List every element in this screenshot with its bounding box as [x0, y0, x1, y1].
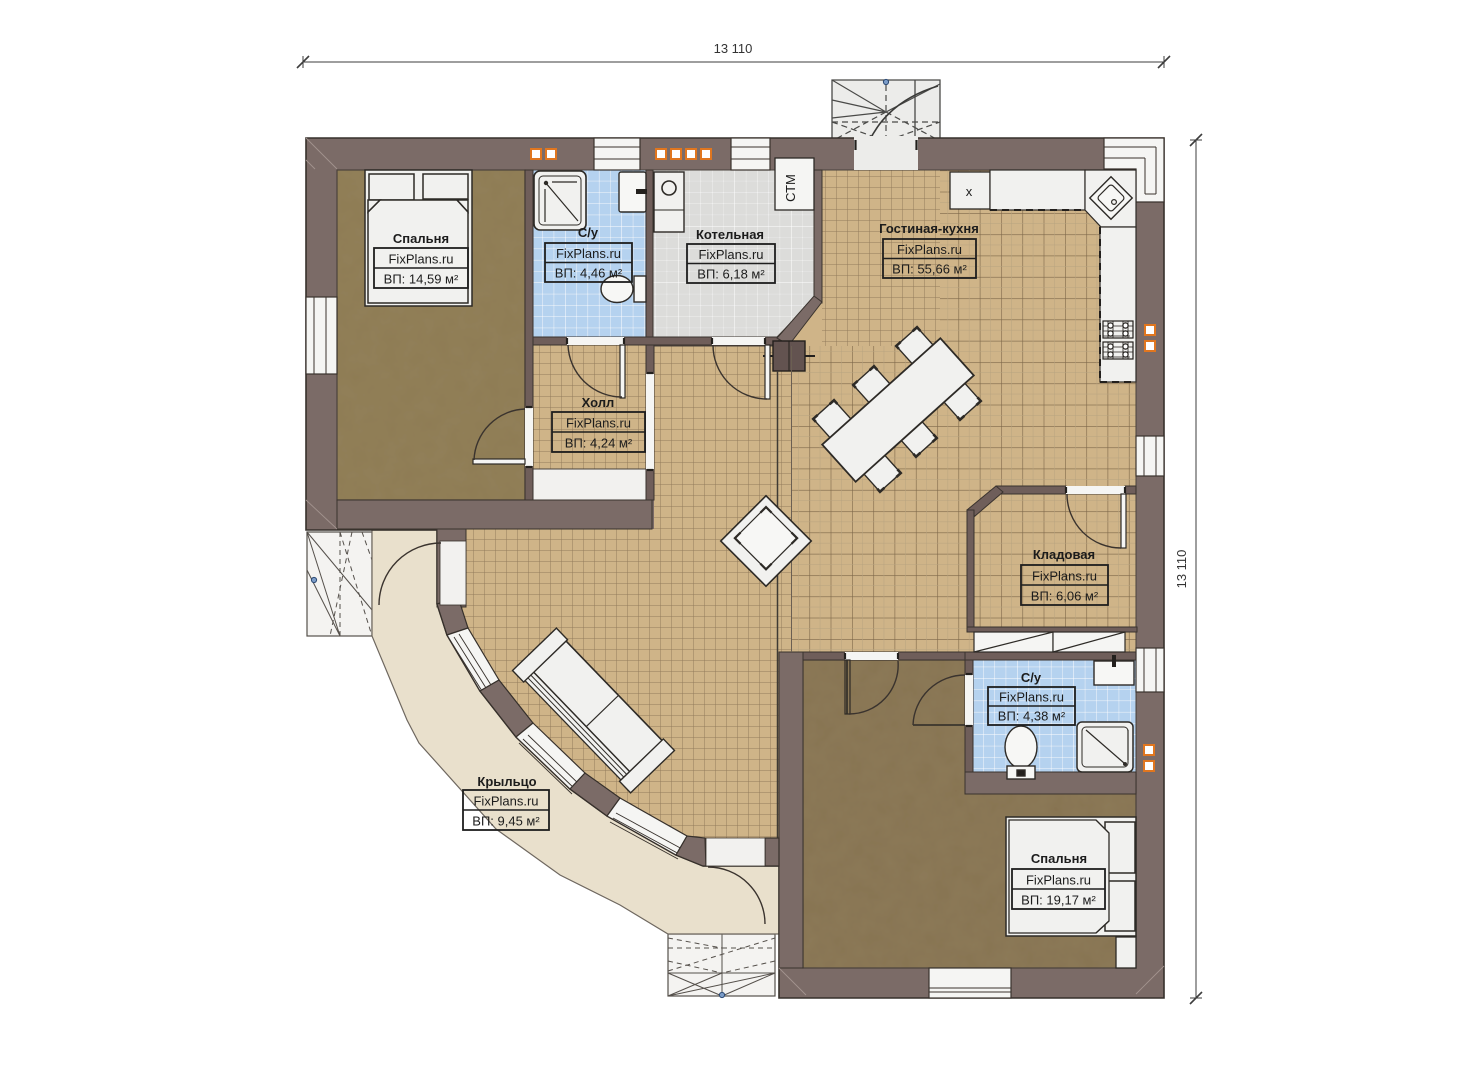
svg-text:FixPlans.ru: FixPlans.ru: [566, 416, 631, 431]
svg-text:ВП: 55,66 м²: ВП: 55,66 м²: [892, 262, 967, 277]
svg-text:FixPlans.ru: FixPlans.ru: [473, 794, 538, 809]
svg-text:FixPlans.ru: FixPlans.ru: [556, 246, 621, 261]
svg-text:ВП: 4,46 м²: ВП: 4,46 м²: [555, 266, 623, 281]
svg-text:Гостиная-кухня: Гостиная-кухня: [879, 221, 979, 236]
svg-text:Спальня: Спальня: [1031, 851, 1087, 866]
svg-text:Крыльцо: Крыльцо: [477, 774, 536, 789]
svg-text:FixPlans.ru: FixPlans.ru: [388, 252, 453, 267]
svg-text:ВП: 14,59 м²: ВП: 14,59 м²: [384, 272, 459, 287]
svg-text:FixPlans.ru: FixPlans.ru: [897, 242, 962, 257]
svg-text:Спальня: Спальня: [393, 231, 449, 246]
svg-text:FixPlans.ru: FixPlans.ru: [1026, 873, 1091, 888]
svg-text:С/у: С/у: [1021, 670, 1042, 685]
svg-text:ВП: 9,45 м²: ВП: 9,45 м²: [472, 814, 540, 829]
svg-text:FixPlans.ru: FixPlans.ru: [698, 247, 763, 262]
svg-text:ВП: 4,38 м²: ВП: 4,38 м²: [998, 709, 1066, 724]
svg-text:ВП: 4,24 м²: ВП: 4,24 м²: [565, 436, 633, 451]
svg-text:Кладовая: Кладовая: [1033, 547, 1095, 562]
svg-text:13 110: 13 110: [714, 41, 753, 56]
svg-text:13 110: 13 110: [1174, 550, 1189, 589]
svg-text:ВП: 6,06 м²: ВП: 6,06 м²: [1031, 589, 1099, 604]
svg-text:x: x: [966, 184, 973, 199]
svg-text:СТМ: СТМ: [783, 174, 798, 202]
svg-text:ВП: 19,17 м²: ВП: 19,17 м²: [1021, 893, 1096, 908]
svg-text:Холл: Холл: [582, 395, 615, 410]
svg-text:С/у: С/у: [578, 225, 599, 240]
svg-text:FixPlans.ru: FixPlans.ru: [1032, 569, 1097, 584]
svg-text:ВП: 6,18 м²: ВП: 6,18 м²: [697, 267, 765, 282]
svg-text:FixPlans.ru: FixPlans.ru: [999, 690, 1064, 705]
svg-text:Котельная: Котельная: [696, 227, 764, 242]
